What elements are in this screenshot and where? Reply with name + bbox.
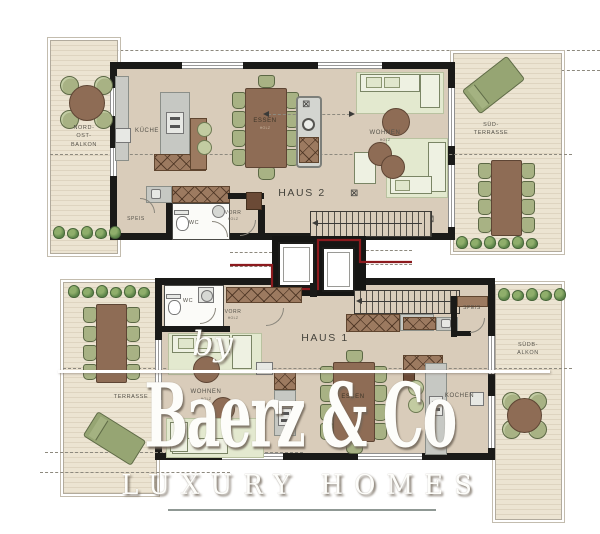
floor-plan-canvas: ESSEN HOLZ ⊠ WOHNEN HOLZ HAUS 2 ⊠ ⊠ SPEI…	[0, 0, 600, 534]
chair	[83, 326, 97, 342]
chair	[83, 307, 97, 323]
stair-arrow-head	[356, 298, 362, 304]
watermark-tagline: LUXURY HOMES	[100, 472, 504, 499]
stair-arrow	[362, 301, 452, 302]
room-label-wc: WC	[178, 297, 198, 305]
chair	[83, 345, 97, 361]
plants	[68, 285, 150, 298]
chair	[126, 326, 140, 342]
label-line: ALKON	[502, 349, 554, 357]
sink	[441, 319, 451, 328]
washer-drum	[201, 290, 213, 302]
watermark-brand: Baerz & Co	[142, 372, 459, 460]
watermark-underline	[168, 509, 436, 511]
chair	[126, 345, 140, 361]
staircase	[354, 290, 460, 314]
material-label: HOLZ	[216, 317, 250, 321]
label-line: SÜDB-	[502, 341, 554, 349]
watermark-by: by	[192, 324, 233, 364]
wardrobe-cabinet	[226, 287, 302, 303]
kitchen-cabinet	[346, 314, 400, 332]
interior-wall	[310, 283, 317, 297]
plan-title-haus-1: HAUS 1	[295, 332, 355, 344]
room-label-speis: SPEIS	[452, 305, 492, 313]
deck-label-sued-balkon: SÜDB- ALKON	[502, 341, 554, 358]
kitchen-cabinet	[403, 317, 436, 330]
plants	[498, 288, 566, 301]
chair	[126, 307, 140, 323]
interior-wall	[457, 331, 471, 336]
round-table	[507, 398, 542, 433]
